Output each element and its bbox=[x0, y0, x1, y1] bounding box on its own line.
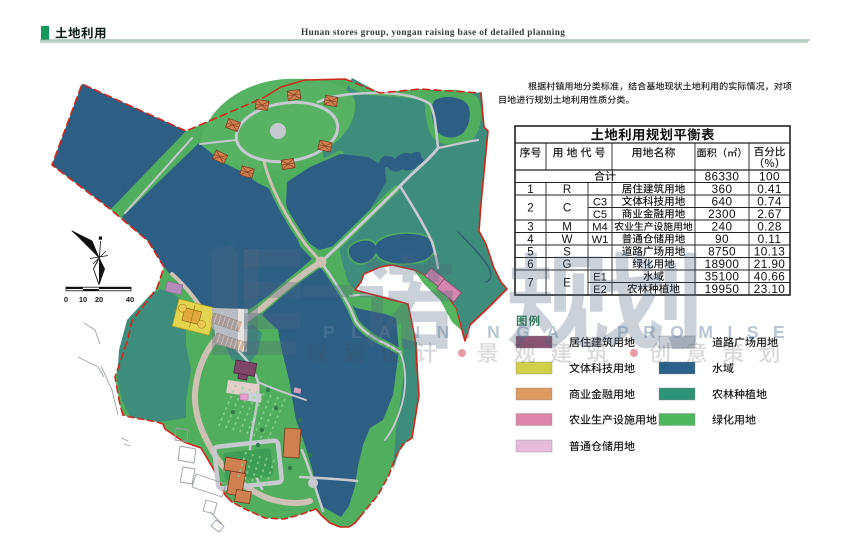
svg-text:W: W bbox=[562, 234, 573, 246]
svg-text:C: C bbox=[563, 203, 571, 215]
svg-text:1: 1 bbox=[527, 184, 533, 196]
svg-text:10: 10 bbox=[79, 295, 87, 304]
svg-text:4: 4 bbox=[527, 234, 534, 246]
svg-text:23.10: 23.10 bbox=[754, 282, 786, 296]
svg-text:PROMISE: PROMISE bbox=[617, 322, 799, 342]
svg-text:40: 40 bbox=[126, 295, 134, 304]
svg-text:M: M bbox=[562, 221, 572, 233]
svg-text:M4: M4 bbox=[592, 221, 608, 233]
svg-text:C3: C3 bbox=[593, 196, 607, 208]
svg-text:19950: 19950 bbox=[705, 282, 740, 296]
svg-text:C5: C5 bbox=[593, 209, 607, 221]
svg-text:2: 2 bbox=[527, 203, 533, 215]
svg-text:3: 3 bbox=[527, 221, 533, 233]
svg-text:0: 0 bbox=[64, 295, 68, 304]
svg-text:W1: W1 bbox=[592, 234, 609, 246]
svg-text:Hunan stores group, yongan rai: Hunan stores group, yongan raising base … bbox=[301, 28, 565, 38]
svg-text:20: 20 bbox=[95, 295, 103, 304]
svg-text:PLANNINGA: PLANNINGA bbox=[323, 322, 576, 342]
svg-text:R: R bbox=[563, 184, 571, 196]
